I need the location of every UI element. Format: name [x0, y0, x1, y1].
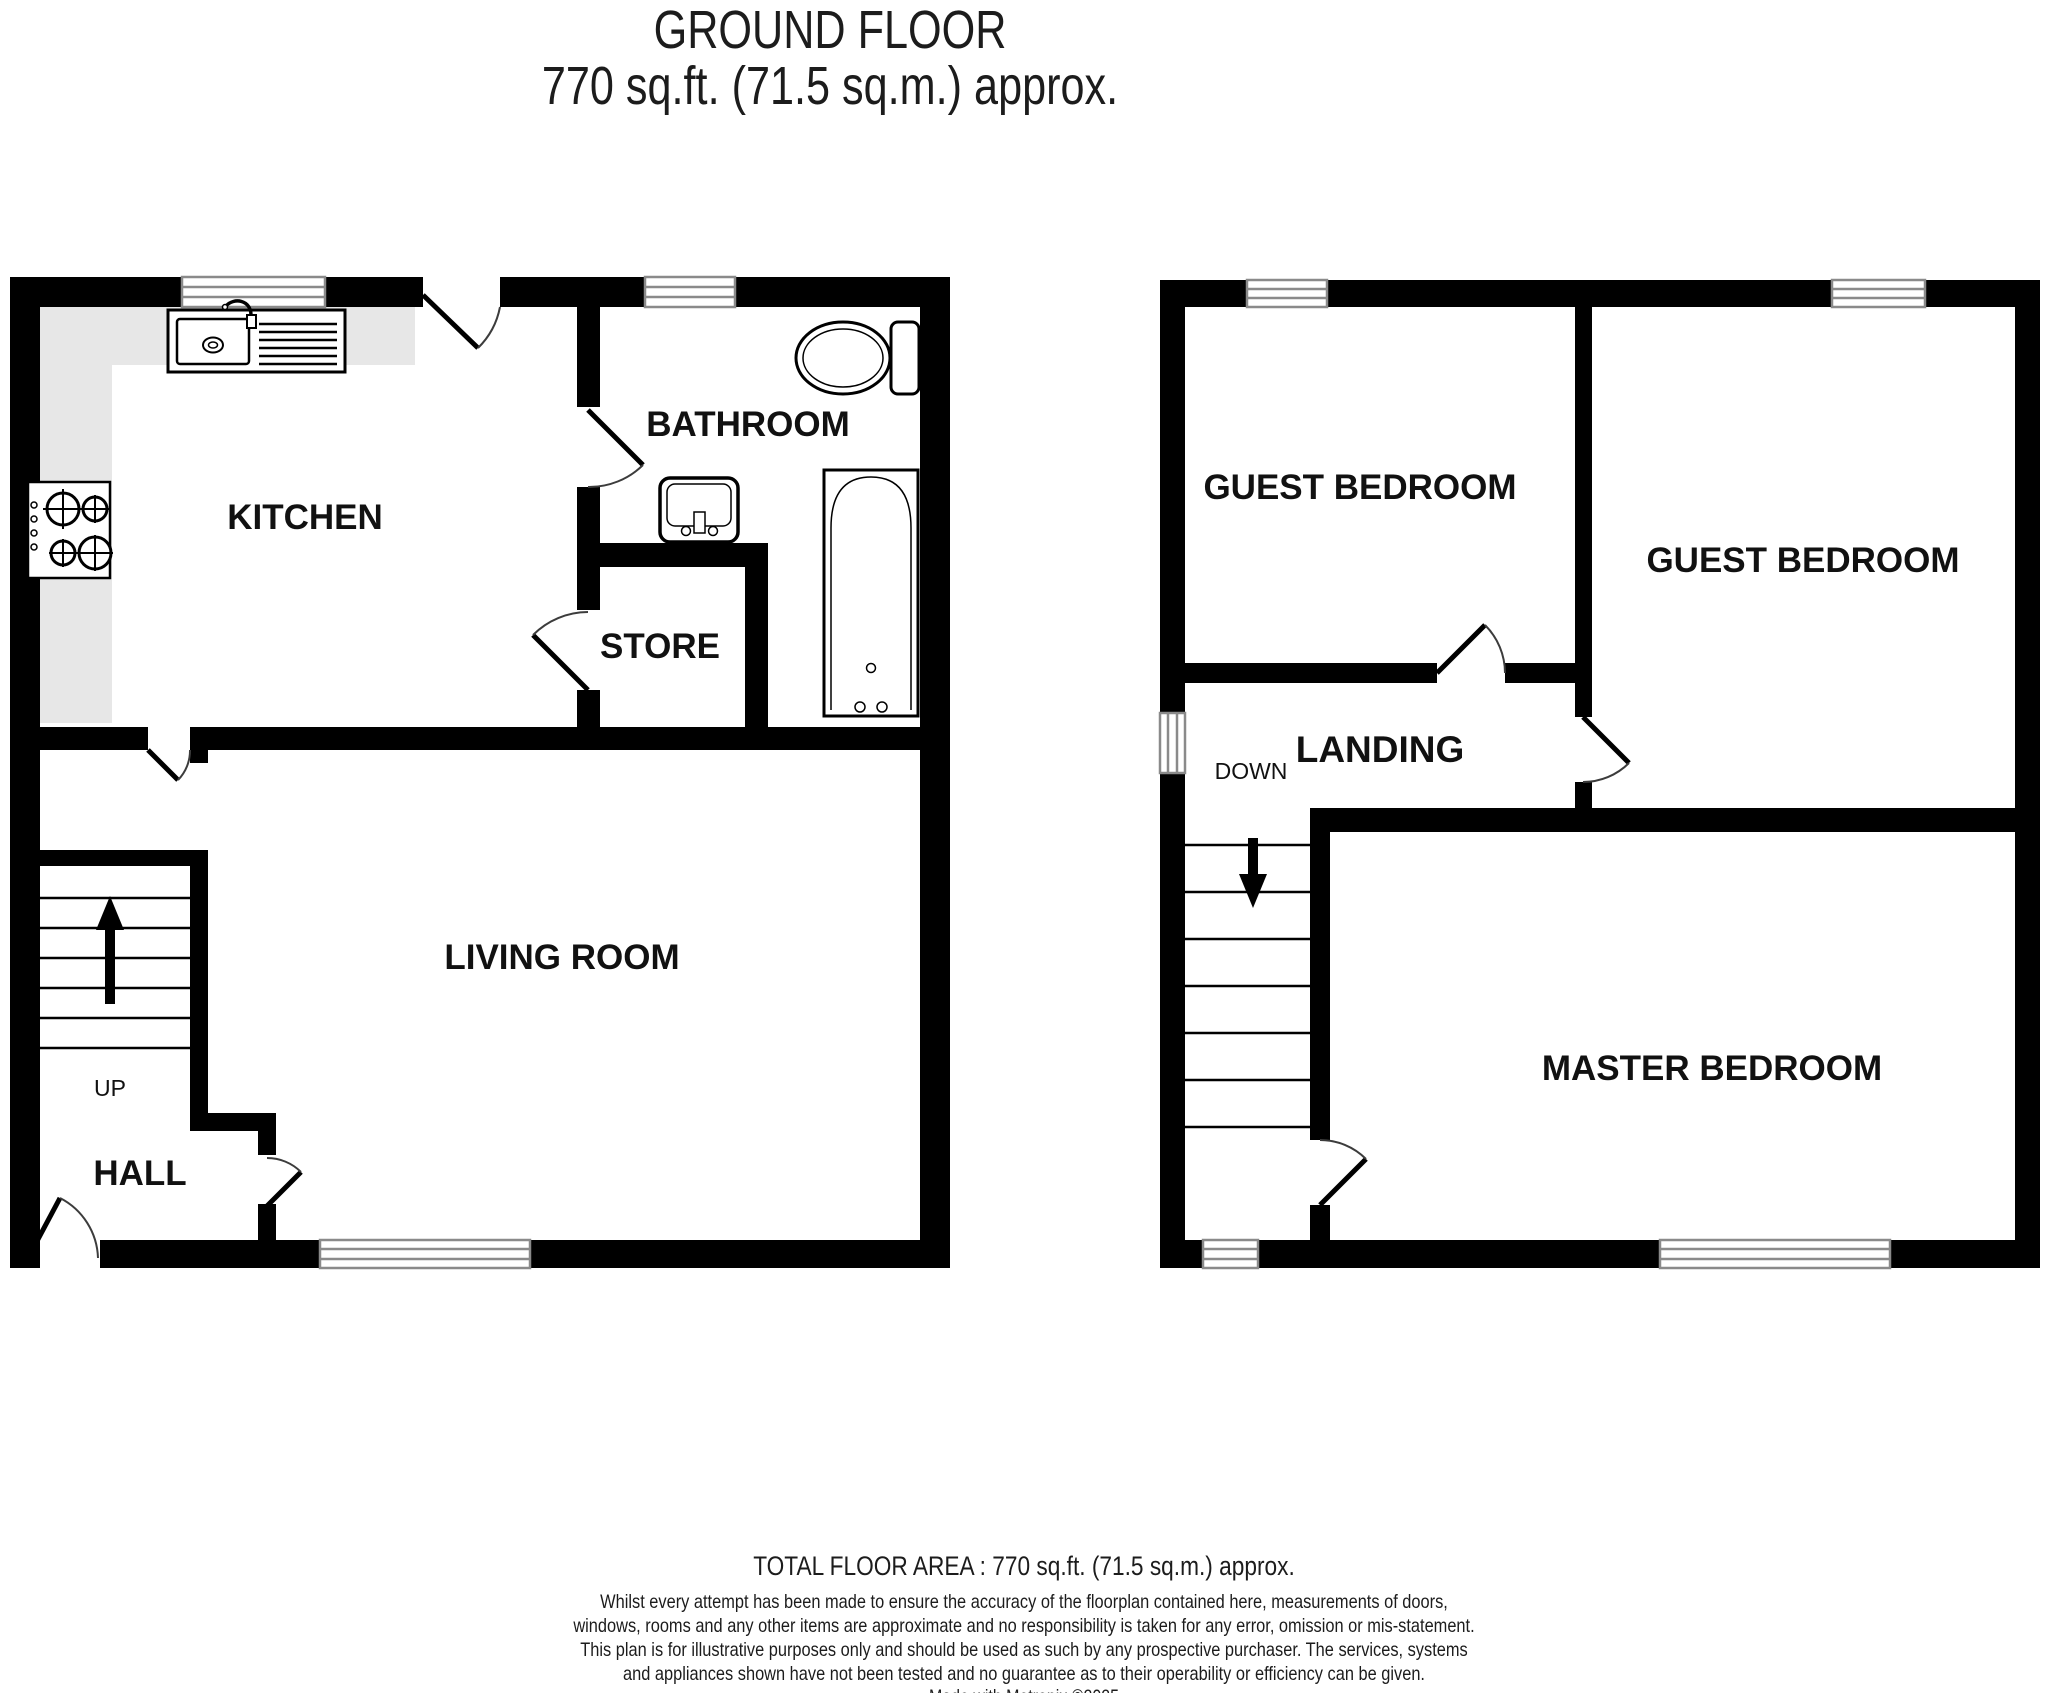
back-door [423, 295, 500, 348]
label-guest-bedroom-1: GUEST BEDROOM [1203, 468, 1516, 507]
landing-window [1160, 713, 1185, 773]
living-room-door [267, 1158, 301, 1206]
master-bedroom-door [1320, 1140, 1366, 1205]
staircase-up [40, 896, 190, 1048]
label-up: UP [94, 1075, 126, 1101]
footer: TOTAL FLOOR AREA : 770 sq.ft. (71.5 sq.m… [570, 1550, 1477, 1693]
bathtub-icon [824, 470, 918, 716]
toilet-icon [796, 322, 919, 394]
label-landing: LANDING [1296, 729, 1465, 770]
first-floor-walls [1160, 280, 2040, 1268]
hob-icon [28, 482, 113, 578]
label-master-bedroom: MASTER BEDROOM [1542, 1049, 1882, 1088]
stairwell-window [1203, 1240, 1258, 1268]
kitchen-door [148, 750, 190, 780]
store-door [533, 612, 588, 690]
guest-bedroom-2-window [1832, 280, 1925, 307]
label-living-room: LIVING ROOM [444, 938, 679, 977]
label-bathroom: BATHROOM [646, 405, 850, 444]
label-kitchen: KITCHEN [227, 498, 383, 537]
bathroom-window [645, 277, 735, 307]
floorplan-page: GROUND FLOOR 770 sq.ft. (71.5 sq.m.) app… [0, 0, 2048, 1693]
label-store: STORE [600, 627, 720, 666]
credit-text: Made with Metropix ©2025 [570, 1686, 1477, 1693]
total-floor-area: TOTAL FLOOR AREA : 770 sq.ft. (71.5 sq.m… [570, 1550, 1477, 1582]
label-hall: HALL [93, 1154, 186, 1193]
guest-bedroom-2-door [1583, 717, 1629, 782]
staircase-down [1185, 838, 1310, 1127]
bathroom-sink-icon [660, 478, 738, 542]
bathroom-door [588, 410, 643, 487]
down-arrow-icon [1239, 838, 1267, 908]
disclaimer-text: Whilst every attempt has been made to en… [570, 1590, 1477, 1686]
living-room-window [320, 1240, 530, 1268]
ground-floor-plan: KITCHEN BATHROOM STORE LIVING ROOM HALL … [10, 277, 950, 1268]
label-down: DOWN [1215, 758, 1288, 784]
guest-bedroom-1-door [1437, 625, 1505, 673]
kitchen-sink-icon [168, 301, 345, 372]
master-bedroom-window [1660, 1240, 1890, 1268]
guest-bedroom-1-window [1247, 280, 1327, 307]
kitchen-window [182, 277, 325, 307]
floorplan-drawing: KITCHEN BATHROOM STORE LIVING ROOM HALL … [0, 0, 2048, 1693]
first-floor-plan: GUEST BEDROOM GUEST BEDROOM LANDING DOWN… [1160, 280, 2040, 1268]
label-guest-bedroom-2: GUEST BEDROOM [1646, 541, 1959, 580]
